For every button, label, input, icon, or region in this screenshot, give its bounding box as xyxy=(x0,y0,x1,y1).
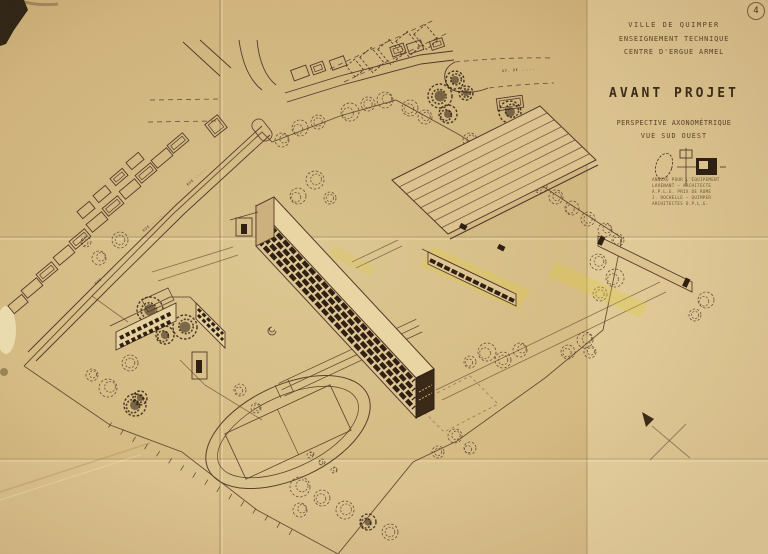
credit-line: ARCHITECTES D.P.L.G. xyxy=(652,201,762,207)
site-plan-drawing: RUE ..... RUE ..... RUE ..... AV. DE ...… xyxy=(0,0,768,554)
credit-line: ANNEXE POUR L'ÉQUIPEMENT xyxy=(652,177,762,183)
paper-grain xyxy=(0,0,768,554)
title-subtitle-2: VUE SUD OUEST xyxy=(588,132,760,140)
title-program: ENSEIGNEMENT TECHNIQUE xyxy=(588,35,760,43)
title-municipality: VILLE DE QUIMPER xyxy=(588,21,760,29)
page-number-badge: 4 xyxy=(747,2,765,20)
scanned-drawing-sheet: RUE ..... RUE ..... RUE ..... AV. DE ...… xyxy=(0,0,768,554)
title-main: AVANT PROJET xyxy=(588,86,760,101)
credit-line: A.P.L.G. PRIX DE ROME xyxy=(652,189,762,195)
credit-line: LAVENANT — ARCHITECTE xyxy=(652,183,762,189)
title-subtitle-1: PERSPECTIVE AXONOMÉTRIQUE xyxy=(588,119,760,127)
credit-line: J. ROCHELLE — QUIMPER xyxy=(652,195,762,201)
title-center: CENTRE D'ERGUE ARMEL xyxy=(588,48,760,56)
